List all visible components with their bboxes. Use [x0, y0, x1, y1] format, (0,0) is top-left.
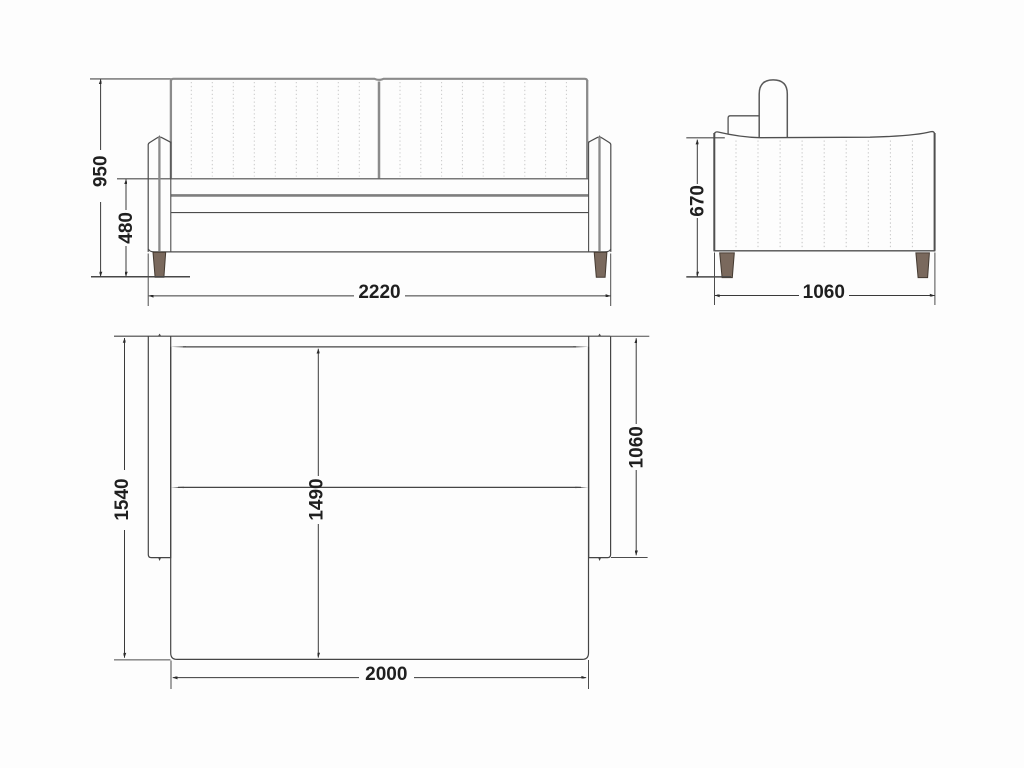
svg-text:1060: 1060	[803, 282, 845, 303]
svg-text:480: 480	[116, 212, 137, 244]
svg-text:1540: 1540	[112, 478, 133, 520]
svg-text:2000: 2000	[365, 664, 407, 685]
svg-text:1060: 1060	[627, 426, 648, 468]
svg-text:950: 950	[91, 155, 112, 187]
svg-text:1490: 1490	[306, 478, 327, 520]
svg-text:670: 670	[688, 185, 709, 217]
svg-text:2220: 2220	[358, 282, 400, 303]
